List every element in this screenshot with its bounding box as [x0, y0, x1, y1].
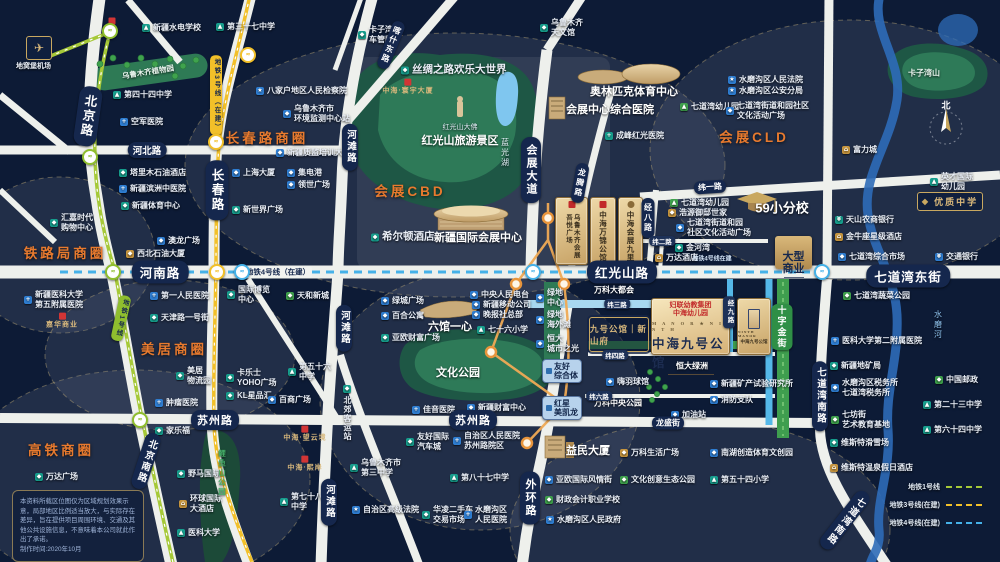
big-mall-badge: 大型 商业 — [775, 236, 812, 269]
road-label: 红光山路 — [587, 261, 657, 284]
road-label: 经八路 — [642, 198, 655, 238]
brand-logo: 中海·寰宇大厦 — [382, 79, 433, 96]
poi-label: +肿瘤医院 — [155, 398, 198, 408]
road-label: 纬三路 — [604, 299, 630, 309]
poi-icon: ⌂ — [830, 464, 838, 472]
poi-icon: ▲ — [670, 199, 678, 207]
poi-icon: ◆ — [226, 392, 234, 400]
poi-icon: ◆ — [606, 378, 614, 386]
tower-icon — [748, 309, 760, 329]
poi-icon: + — [119, 185, 127, 193]
poi-icon: + — [24, 296, 32, 304]
poi-icon: ◆ — [177, 470, 185, 478]
poi-label: ◆新疆质监培训大厦 — [276, 148, 351, 158]
poi-text: 成峰红光医院 — [616, 131, 664, 141]
project-en-label: M A N O R ★ N I N T H — [652, 321, 729, 332]
road-label: 七道湾南路 — [812, 361, 828, 431]
brand-logo-mark — [405, 79, 412, 86]
poi-icon: ◆ — [710, 380, 718, 388]
poi-icon: ¥ — [835, 216, 843, 224]
poi-icon: ◆ — [545, 476, 553, 484]
poi-text: 水磨沟区人民法院 — [739, 75, 803, 85]
poi-icon: ◆ — [843, 292, 851, 300]
road-label: 纬二路 — [649, 236, 675, 246]
poi-label: ◆百合公寓 — [381, 311, 424, 321]
poi-icon: ◆ — [710, 449, 718, 457]
poi-text: 第五十六 中学 — [299, 362, 331, 382]
wanjin-mansion-block: 中海万锦公馆 — [590, 197, 616, 265]
poi-label: +新疆医科大学 第五附属医院 — [24, 290, 83, 310]
poi-icon: ◆ — [540, 24, 548, 32]
big-mall-label: 大型 商业 — [783, 251, 805, 275]
poi-text: 维斯特温泉假日酒店 — [841, 463, 913, 473]
road-label: 经九路 — [723, 296, 735, 328]
poi-label: ◆文化创意生态公园 — [620, 475, 695, 485]
poi-text: 西北石油大厦 — [137, 249, 185, 259]
poi-text: 北郊客运站 — [342, 396, 352, 441]
poi-text: 第八十七中学 — [461, 473, 509, 483]
metro-legend: 地铁1号线地铁3号线(在建)地铁4号线(在建) — [889, 482, 982, 528]
brand-logo-mark — [302, 426, 309, 433]
poi-label: ★水磨沟区人民政府 — [546, 515, 621, 525]
map-text: 红光山旅游景区 — [422, 132, 499, 148]
poi-label: ◆七道湾综合市场 — [838, 252, 905, 262]
poi-text: 自治区人民医院 苏州路院区 — [464, 431, 520, 451]
poi-label: ◆亚欧国际风情街 — [545, 475, 612, 485]
poi-text: 七道湾蔬菜公园 — [854, 291, 910, 301]
metro-station-icon: ≈ — [82, 149, 98, 165]
poi-text: 希尔顿酒店 — [382, 230, 435, 243]
poi-text: 万达广场 — [46, 472, 78, 482]
jiuli-label: 中海会展九里 — [619, 198, 642, 264]
brand-logo-text: 中海·熙岸 — [287, 465, 322, 473]
poi-icon: ◆ — [227, 291, 235, 299]
poi-text: 天山农商银行 — [846, 215, 894, 225]
poi-label: ◆丝绸之路欢乐大世界 — [401, 63, 507, 76]
legend-label: 地铁4号线(在建) — [889, 518, 940, 528]
poi-icon: ▲ — [350, 464, 358, 472]
poi-text: 百商广场 — [279, 395, 311, 405]
poi-icon: ◆ — [232, 206, 240, 214]
location-map: 乌鲁木齐会展 吾悦广场 中海万锦公馆 中海会展九里 九号公馆｜新山府 妇联幼教集… — [0, 0, 1000, 562]
poi-label: +医科大学第二附属医院 — [831, 336, 922, 346]
poi-label: ◆恒大 城市之光 — [536, 334, 579, 354]
quality-school-label: 优质中学 — [934, 195, 978, 208]
metro-station-icon: ≈ — [208, 134, 224, 150]
poi-icon: ◆ — [472, 311, 480, 319]
poi-label: +成峰红光医院 — [605, 131, 664, 141]
road-label: 苏州路 — [191, 410, 239, 430]
poi-icon: ◆ — [35, 473, 43, 481]
poi-icon: ◆ — [536, 340, 544, 348]
poi-text: 澳龙广场 — [168, 236, 200, 246]
metro-station-icon: ≈ — [102, 23, 118, 39]
road-label: 河滩路 — [336, 305, 352, 352]
poi-icon: + — [150, 292, 158, 300]
road-label: 河南路 — [132, 261, 189, 284]
road-label: 苏州路 — [449, 410, 497, 430]
road-label: 十字金街 — [772, 304, 793, 350]
poi-icon: ◆ — [381, 312, 389, 320]
poi-label: ◆财政会计职业学校 — [545, 495, 620, 505]
poi-text: 第五十四小学 — [721, 475, 769, 485]
poi-text: 七十六小学 — [488, 325, 528, 335]
poi-icon: ▲ — [450, 474, 458, 482]
poi-text: 加油站 — [682, 410, 706, 420]
poi-text: 金牛座星级酒店 — [846, 232, 902, 242]
poi-icon: ⌂ — [835, 233, 843, 241]
poi-icon: ◆ — [536, 316, 544, 324]
poi-label: ◆绿城广场 — [381, 296, 424, 306]
hospital-building-art — [549, 97, 565, 119]
poi-icon: ◆ — [620, 449, 628, 457]
mansion-no9-sub-label: 九号公馆｜新山府 — [590, 323, 648, 347]
brand-logo: 中海·望云境 — [283, 426, 326, 443]
poi-text: 英才国际 幼儿园 — [941, 172, 973, 192]
poi-text: 新世界广场 — [243, 205, 283, 215]
brand-logo-mark — [302, 456, 309, 463]
poi-text: 新疆水电学校 — [153, 23, 201, 33]
road-label: 河北路 — [128, 142, 167, 158]
poi-text: 七道湾幼儿园 — [681, 198, 729, 208]
poi-label: ◆七道湾蔬菜公园 — [843, 291, 910, 301]
amenity-box-text: 红星 美凯龙 — [554, 399, 578, 417]
airport-label: 地窝堡机场 — [16, 61, 51, 71]
poi-text: 金河湾 — [686, 243, 710, 253]
poi-label: ⌂金牛座星级酒店 — [835, 232, 902, 242]
poi-label: ▲第四十四中学 — [113, 90, 172, 100]
poi-label: ¥交通银行 — [935, 252, 978, 262]
road-label: 七道湾东街 — [866, 265, 950, 288]
poi-icon: ◆ — [121, 202, 129, 210]
poi-text: 天和新城 — [297, 291, 329, 301]
poi-icon: ◆ — [287, 181, 295, 189]
poi-icon: ◆ — [472, 301, 480, 309]
poi-icon: ◆ — [935, 376, 943, 384]
poi-icon: ★ — [728, 87, 736, 95]
road-label: 纬六路 — [586, 391, 612, 401]
legend-label: 地铁1号线 — [908, 482, 940, 492]
poi-icon: + — [412, 406, 420, 414]
road-label: 纬四路 — [602, 350, 628, 360]
poi-text: 文化创意生态公园 — [631, 475, 695, 485]
poi-label: +新疆滨洲中医院 — [119, 184, 186, 194]
poi-text: 亚欧财富广场 — [392, 333, 440, 343]
poi-label: ¥天山农商银行 — [835, 215, 894, 225]
compass-north-label: 北 — [941, 99, 950, 112]
brand-logo-text: 中海·寰宇大厦 — [382, 88, 433, 96]
quality-school-badge: ◆ 优质中学 — [917, 192, 983, 211]
brand-logo-mark — [59, 313, 66, 320]
poi-label: ◆嗨羽球馆 — [606, 377, 649, 387]
poi-icon: ▲ — [216, 23, 224, 31]
poi-label: ◆领世广场 — [287, 180, 330, 190]
poi-label: ◆七道湾街道和园社区 文化活动广场 — [726, 101, 809, 121]
poi-label: ◆西北石油大厦 — [126, 249, 185, 259]
poi-icon: ◆ — [381, 297, 389, 305]
poi-label: ▲第七十八 中学 — [280, 492, 323, 512]
airport-icon: ✈ — [26, 36, 52, 60]
poi-icon: + — [605, 132, 613, 140]
poi-text: 财政会计职业学校 — [556, 495, 620, 505]
map-text: 万科大都会 — [594, 285, 634, 296]
poi-icon: + — [155, 399, 163, 407]
poi-icon: ◆ — [676, 224, 684, 232]
poi-icon: ◆ — [668, 209, 676, 217]
poi-icon: ◆ — [470, 291, 478, 299]
road-label: 长春路 — [206, 160, 229, 220]
poi-label: ◆七坊街 艺术教育基地 — [831, 410, 890, 430]
poi-icon: ▲ — [177, 529, 185, 537]
road-label: 龙盛街 — [652, 417, 684, 430]
map-text: 会展中心综合医院 — [566, 101, 654, 117]
poi-label: ◆万科生活广场 — [620, 448, 679, 458]
poi-icon: ▲ — [923, 426, 931, 434]
poi-icon: ★ — [352, 506, 360, 514]
poi-text: 第六十四中学 — [934, 425, 982, 435]
poi-icon: ▲ — [280, 498, 288, 506]
poi-text: 七坊街 艺术教育基地 — [842, 410, 890, 430]
business-circle-label: 会展CBD — [374, 180, 445, 200]
poi-label: ▲第二十三中学 — [923, 400, 982, 410]
amenity-box: 红星 美凯龙 — [542, 396, 582, 420]
map-text: 文化公园 — [436, 364, 480, 380]
poi-text: 第七十八 中学 — [291, 492, 323, 512]
poi-icon: ◆ — [371, 233, 379, 241]
poi-text: 医科大学第二附属医院 — [842, 336, 922, 346]
poi-label: ◆中央人民电台 — [470, 290, 529, 300]
amenity-box-icon — [546, 368, 552, 374]
legend-row: 地铁1号线 — [889, 482, 982, 492]
poi-text: 新疆滨洲中医院 — [130, 184, 186, 194]
metro-station-icon: ≈ — [525, 264, 541, 280]
poi-icon: ◆ — [620, 476, 628, 484]
poi-text: 医科大学 — [188, 528, 220, 538]
poi-icon: ▲ — [113, 91, 121, 99]
legend-row: 地铁4号线(在建) — [889, 518, 982, 528]
poi-label: ◆上海大厦 — [232, 168, 275, 178]
poi-text: 塔里木石油酒店 — [130, 168, 186, 178]
poi-label: ▲乌鲁木齐市 第三中学 — [350, 458, 401, 478]
poi-label: ◆中国邮政 — [935, 375, 978, 385]
poi-icon: + — [120, 118, 128, 126]
poi-icon: ◆ — [50, 219, 58, 227]
poi-text: 百合公寓 — [392, 311, 424, 321]
poi-text: 恒大 城市之光 — [547, 334, 579, 354]
metro-station-icon: ≈ — [240, 47, 256, 63]
poi-text: 乌鲁木齐市 第三中学 — [361, 458, 401, 478]
poi-icon: ◆ — [381, 334, 389, 342]
poi-icon: ◆ — [119, 169, 127, 177]
poi-icon: ★ — [546, 516, 554, 524]
poi-icon: ◆ — [268, 396, 276, 404]
poi-icon: ⌂ — [842, 146, 850, 154]
poi-label: ◆金河湾 — [675, 243, 710, 253]
poi-text: 卡乐士 YOHO广场 — [237, 368, 277, 388]
poi-label: ▲七十六小学 — [477, 325, 528, 335]
poi-label: ◆澳龙广场 — [157, 236, 200, 246]
map-text: 59小分校 — [755, 198, 808, 217]
poi-label: ◆KL星品汇 — [226, 391, 272, 401]
poi-text: 上海大厦 — [243, 168, 275, 178]
poi-label: ▲第六十四中学 — [923, 425, 982, 435]
brand-logo: 嘉华商业 — [46, 313, 78, 330]
poi-icon: ◆ — [831, 416, 839, 424]
poi-text: 中国邮政 — [946, 375, 978, 385]
poi-text: 乌鲁木齐 天文馆 — [551, 18, 583, 38]
road-label: 纬一路 — [694, 179, 727, 194]
brand-logo-text: 嘉华商业 — [46, 322, 78, 330]
poi-label: ◆天和新城 — [286, 291, 329, 301]
poi-label: ◆汇嘉时代 购物中心 — [50, 213, 93, 233]
poi-label: ▲新疆水电学校 — [142, 23, 201, 33]
poi-icon: ◆ — [276, 149, 284, 157]
poi-label: ◆北郊客运站 — [342, 385, 352, 441]
buddha-statue-art — [457, 96, 463, 117]
poi-label: ★水磨沟区公安分局 — [728, 86, 803, 96]
poi-text: 七道湾街道和园社区 文化活动广场 — [737, 101, 809, 121]
poi-label: ⌂环球国际 大酒店 — [179, 494, 222, 514]
poi-label: +水磨沟区 人民医院 — [464, 505, 507, 525]
poi-icon: ◆ — [545, 496, 553, 504]
map-text: 鲤鱼山公园 — [217, 449, 228, 497]
poi-label: ◆水磨沟区税务所 七道湾税务所 — [831, 378, 898, 398]
poi-icon: ◆ — [838, 253, 846, 261]
business-circle-label: 会展CLD — [719, 126, 789, 146]
poi-icon: + — [453, 437, 461, 445]
poi-label: +空军医院 — [120, 117, 163, 127]
poi-text: 中央人民电台 — [481, 290, 529, 300]
poi-label: ▲医科大学 — [177, 528, 220, 538]
poi-icon: ◆ — [536, 294, 544, 302]
poi-label: ◆乌鲁木齐市 环境监测中心站 — [283, 104, 350, 124]
poi-label: ◆美居 物流园 — [176, 366, 211, 386]
poi-text: 领世广场 — [298, 180, 330, 190]
poi-text: 亚欧国际风情街 — [556, 475, 612, 485]
road-label: 河滩路 — [342, 124, 358, 171]
grad-cap-small-icon: ◆ — [922, 197, 930, 206]
poi-icon: ★ — [256, 87, 264, 95]
poi-label: ▲英才国际 幼儿园 — [930, 172, 973, 192]
poi-icon: ◆ — [358, 31, 366, 39]
poi-icon: ▲ — [477, 326, 485, 334]
poi-text: 南湖创造体育文创园 — [721, 448, 793, 458]
business-circle-label: 美居商圈 — [141, 338, 207, 358]
map-text: 蓝光湖 — [500, 138, 511, 168]
wuyue-plaza-label: 乌鲁木齐会展 吾悦广场 — [556, 198, 587, 264]
poi-icon: ◆ — [126, 250, 134, 258]
poi-label: ▲七道湾幼儿园 — [670, 198, 729, 208]
poi-icon: ◆ — [401, 66, 409, 74]
map-text: 益民大厦 — [566, 442, 610, 458]
poi-label: ◆野马国际 — [177, 469, 220, 479]
poi-icon: ◆ — [150, 314, 158, 322]
map-text: 奥林匹克体育中心 — [590, 83, 678, 99]
poi-icon: ▲ — [710, 476, 718, 484]
convention-center-art — [434, 206, 508, 231]
poi-label: ⌂维斯特温泉假日酒店 — [830, 463, 913, 473]
project-main-block: 妇联幼教集团 中海幼儿园 M A N O R ★ N I N T H 中海九号公… — [651, 298, 730, 355]
metro-station-icon: ≈ — [814, 264, 830, 280]
poi-text: 维斯特滑雪场 — [841, 438, 889, 448]
poi-icon: ⌂ — [179, 500, 187, 508]
poi-text: 新疆移动公司 — [483, 300, 531, 310]
poi-icon: + — [831, 337, 839, 345]
poi-label: ◆绿地 中心 — [536, 288, 563, 308]
poi-icon: ◆ — [710, 396, 718, 404]
poi-text: 空军医院 — [131, 117, 163, 127]
poi-text: 新疆医科大学 第五附属医院 — [35, 290, 83, 310]
poi-text: 第二十三中学 — [934, 400, 982, 410]
poi-icon: ◆ — [176, 372, 184, 380]
poi-label: ◆希尔顿酒店 — [371, 230, 435, 243]
poi-label: ▲第五十四小学 — [710, 475, 769, 485]
poi-label: ▲第八十七中学 — [450, 473, 509, 483]
poi-icon: ◆ — [406, 438, 414, 446]
business-circle-label: 铁路局商圈 — [24, 242, 107, 262]
poi-label: +佳音医院 — [412, 405, 455, 415]
poi-label: ◆卡乐士 YOHO广场 — [226, 368, 277, 388]
poi-icon: ◆ — [286, 292, 294, 300]
wanjin-mansion-label: 中海万锦公馆 — [591, 198, 615, 264]
poi-icon: ◆ — [157, 237, 165, 245]
poi-label: ◆新疆地矿局 — [830, 361, 881, 371]
poi-label: ▲第五十六 中学 — [288, 362, 331, 382]
poi-label: ◆新疆矿产试验研究所 — [710, 379, 793, 389]
poi-label: ◆南湖创造体育文创园 — [710, 448, 793, 458]
map-text: 红光山大佛 — [443, 122, 478, 132]
poi-icon: ◆ — [830, 439, 838, 447]
poi-text: 第四十四中学 — [124, 90, 172, 100]
legend-line-sample — [946, 486, 982, 488]
poi-text: 富力城 — [853, 145, 877, 155]
poi-label: ★水磨沟区人民法院 — [728, 75, 803, 85]
poi-icon: ★ — [728, 76, 736, 84]
poi-label: ◆国际博览 中心 — [227, 285, 270, 305]
poi-icon: ▲ — [680, 103, 688, 111]
poi-label: ◆七道湾街道和园 社区文化活动广场 — [676, 218, 751, 238]
metro-station-icon: ≈ — [209, 264, 225, 280]
poi-label: ◆新疆移动公司 — [472, 300, 531, 310]
amenity-box-icon — [546, 405, 552, 411]
poi-icon: ◆ — [232, 169, 240, 177]
brand-logo: 中海·熙岸 — [287, 456, 322, 473]
legend-line-sample — [946, 504, 982, 506]
poi-label: ◆新世界广场 — [232, 205, 283, 215]
poi-icon: ◆ — [675, 244, 683, 252]
poi-icon: ◆ — [726, 107, 734, 115]
poi-icon: ¥ — [935, 253, 943, 261]
poi-icon: ◆ — [287, 169, 295, 177]
road-label: 地铁3号线（在建） — [210, 55, 222, 135]
poi-text: 乌鲁木齐市 环境监测中心站 — [294, 104, 350, 124]
poi-text: 家乐福 — [166, 426, 190, 436]
poi-label: ◆友好国际 汽车城 — [406, 432, 449, 452]
poi-text: 自治区高级法院 — [363, 505, 419, 515]
poi-text: 第三十七中学 — [227, 22, 275, 32]
poi-label: ◆维斯特滑雪场 — [830, 438, 889, 448]
poi-label: +第一人民医院 — [150, 291, 209, 301]
map-text: 水磨河 — [933, 310, 944, 340]
jiuli-block: 中海会展九里 — [618, 197, 643, 265]
mansion-no9-sub-block: 九号公馆｜新山府 — [589, 317, 649, 352]
poi-icon: ▲ — [923, 401, 931, 409]
road-label: 地铁4号线（在建） — [244, 267, 312, 278]
project-logo-tower: NINTH MANOR 中海九号公馆 — [737, 298, 771, 355]
disclaimer: 本资料所载区位图仅为区域规划效果示意，局部地区比例适当放大，与实际存在差异，旨在… — [12, 490, 144, 562]
project-divider — [668, 374, 714, 375]
poi-icon: ◆ — [226, 374, 234, 382]
